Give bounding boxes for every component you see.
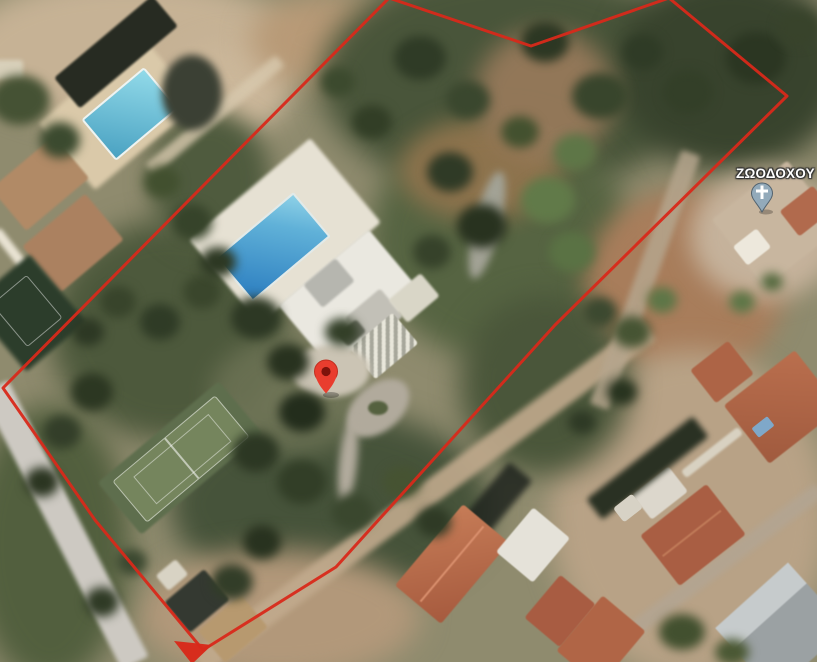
tree-cluster (231, 297, 281, 339)
tree-cluster (140, 304, 180, 340)
tree-cluster (25, 467, 59, 497)
tree-cluster (427, 152, 473, 192)
tree-cluster (501, 116, 539, 148)
tree-cluster (321, 67, 355, 97)
tree-cluster (613, 316, 651, 348)
tree-cluster (549, 232, 595, 272)
tree-cluster (647, 287, 677, 313)
tree-cluster (457, 204, 507, 248)
tree-cluster (554, 134, 596, 170)
roof-ridge (662, 510, 721, 557)
tree-cluster (279, 392, 325, 432)
poi-label[interactable]: ΖΩΟΔΟΧΟΥ (736, 166, 815, 181)
tree-cluster (43, 415, 81, 449)
tree-cluster (144, 166, 180, 198)
tree-cluster (659, 614, 705, 650)
tree-cluster (607, 379, 637, 405)
tree-cluster (352, 105, 392, 139)
tree-cluster (417, 507, 451, 537)
tree-cluster (623, 34, 663, 70)
tree-cluster (715, 639, 749, 662)
tree-cluster (172, 204, 212, 240)
tree-cluster (446, 81, 490, 119)
tree-cluster (568, 410, 596, 434)
tree-cluster (85, 587, 119, 617)
tree-cluster (729, 291, 755, 313)
tree-cluster (183, 275, 221, 309)
location-pin-dot (321, 367, 330, 376)
tree-cluster (521, 22, 569, 62)
tree-shadow (162, 55, 222, 130)
tree-cluster (71, 373, 113, 411)
tree-cluster (383, 466, 421, 498)
tree-cluster (394, 36, 446, 80)
tree-cluster (777, 10, 817, 46)
tree-cluster (572, 73, 628, 119)
tree-cluster (243, 525, 281, 559)
tree-cluster (233, 432, 279, 472)
tree-cluster (100, 286, 136, 318)
tree-cluster (267, 344, 309, 380)
tree-cluster (583, 297, 617, 327)
tree-cluster (72, 318, 104, 346)
tree-cluster (413, 235, 451, 269)
tree-cluster (325, 318, 359, 346)
tree-cluster (277, 460, 327, 504)
tree-cluster (200, 247, 236, 277)
driveway-island (368, 401, 388, 415)
tree-cluster (331, 494, 373, 530)
tree-cluster (521, 177, 575, 223)
tree-cluster (40, 122, 80, 158)
tree-cluster (117, 549, 147, 575)
tree-cluster (726, 32, 786, 84)
tree-cluster (761, 273, 783, 291)
location-pin-shadow (323, 392, 339, 398)
tree-cluster (211, 564, 253, 600)
satellite-map-canvas[interactable]: ΖΩΟΔΟΧΟΥ (0, 0, 817, 662)
tree-cluster (663, 70, 713, 114)
